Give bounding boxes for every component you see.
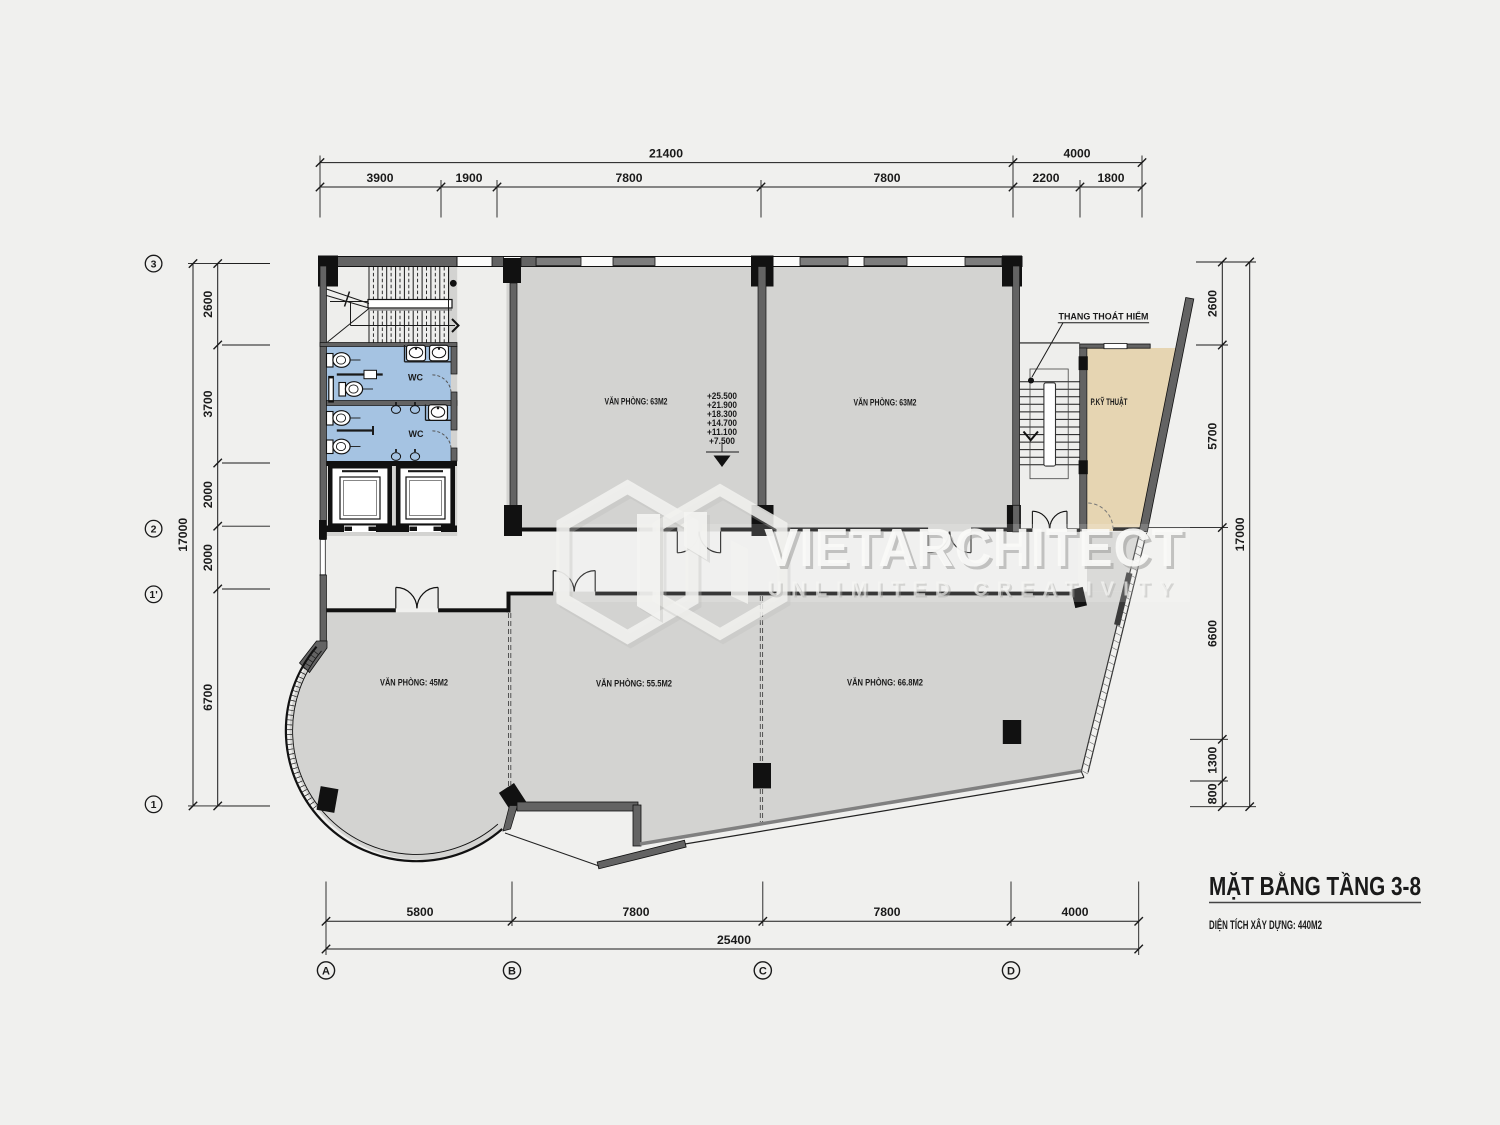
svg-text:7800: 7800 bbox=[623, 907, 650, 919]
svg-text:25400: 25400 bbox=[717, 935, 751, 947]
svg-text:P.KỸ THUẬT: P.KỸ THUẬT bbox=[1091, 396, 1128, 408]
svg-text:B: B bbox=[508, 965, 516, 977]
svg-text:VĂN PHÒNG: 45M2: VĂN PHÒNG: 45M2 bbox=[380, 677, 448, 689]
svg-text:2200: 2200 bbox=[1033, 173, 1060, 185]
svg-text:17000: 17000 bbox=[178, 518, 190, 552]
svg-text:1: 1 bbox=[151, 799, 157, 811]
svg-text:21400: 21400 bbox=[649, 149, 683, 161]
svg-text:4000: 4000 bbox=[1064, 149, 1091, 161]
svg-text:7800: 7800 bbox=[874, 173, 901, 185]
svg-text:7800: 7800 bbox=[616, 173, 643, 185]
svg-text:7800: 7800 bbox=[874, 907, 901, 919]
svg-text:WC: WC bbox=[409, 429, 424, 439]
svg-text:2600: 2600 bbox=[203, 291, 215, 318]
svg-text:VĂN PHÒNG: 66.8M2: VĂN PHÒNG: 66.8M2 bbox=[847, 677, 923, 689]
svg-text:VIETARCHITECT: VIETARCHITECT bbox=[764, 518, 1184, 578]
svg-text:800: 800 bbox=[1208, 783, 1220, 804]
svg-text:2000: 2000 bbox=[203, 544, 215, 571]
svg-text:MẶT BẰNG TẦNG 3-8: MẶT BẰNG TẦNG 3-8 bbox=[1209, 871, 1421, 901]
svg-text:WC: WC bbox=[408, 373, 423, 383]
svg-text:VĂN PHÒNG: 63M2: VĂN PHÒNG: 63M2 bbox=[605, 396, 668, 408]
svg-text:1300: 1300 bbox=[1208, 747, 1220, 774]
svg-text:VĂN PHÒNG: 63M2: VĂN PHÒNG: 63M2 bbox=[854, 397, 917, 409]
svg-text:2600: 2600 bbox=[1208, 290, 1220, 317]
svg-text:6600: 6600 bbox=[1208, 620, 1220, 647]
svg-text:3900: 3900 bbox=[367, 173, 394, 185]
svg-text:6700: 6700 bbox=[203, 684, 215, 711]
svg-text:DIỆN TÍCH XÂY DỰNG: 440M2: DIỆN TÍCH XÂY DỰNG: 440M2 bbox=[1209, 919, 1322, 932]
svg-text:THANG THOÁT HIỂM: THANG THOÁT HIỂM bbox=[1059, 311, 1149, 323]
svg-text:3700: 3700 bbox=[203, 391, 215, 418]
svg-text:4000: 4000 bbox=[1062, 907, 1089, 919]
svg-text:D: D bbox=[1007, 965, 1015, 977]
svg-text:3: 3 bbox=[151, 258, 157, 270]
svg-text:17000: 17000 bbox=[1235, 517, 1247, 551]
svg-text:A: A bbox=[322, 965, 330, 977]
svg-text:1900: 1900 bbox=[456, 173, 483, 185]
svg-text:UNLIMITED CREATIVITY: UNLIMITED CREATIVITY bbox=[768, 578, 1182, 601]
svg-text:VĂN PHÒNG: 55.5M2: VĂN PHÒNG: 55.5M2 bbox=[596, 678, 672, 690]
svg-text:C: C bbox=[759, 965, 767, 977]
svg-text:1800: 1800 bbox=[1098, 173, 1125, 185]
svg-text:1': 1' bbox=[149, 589, 157, 601]
svg-text:5800: 5800 bbox=[407, 907, 434, 919]
svg-text:2000: 2000 bbox=[203, 481, 215, 508]
svg-text:2: 2 bbox=[151, 524, 157, 536]
svg-text:5700: 5700 bbox=[1208, 423, 1220, 450]
